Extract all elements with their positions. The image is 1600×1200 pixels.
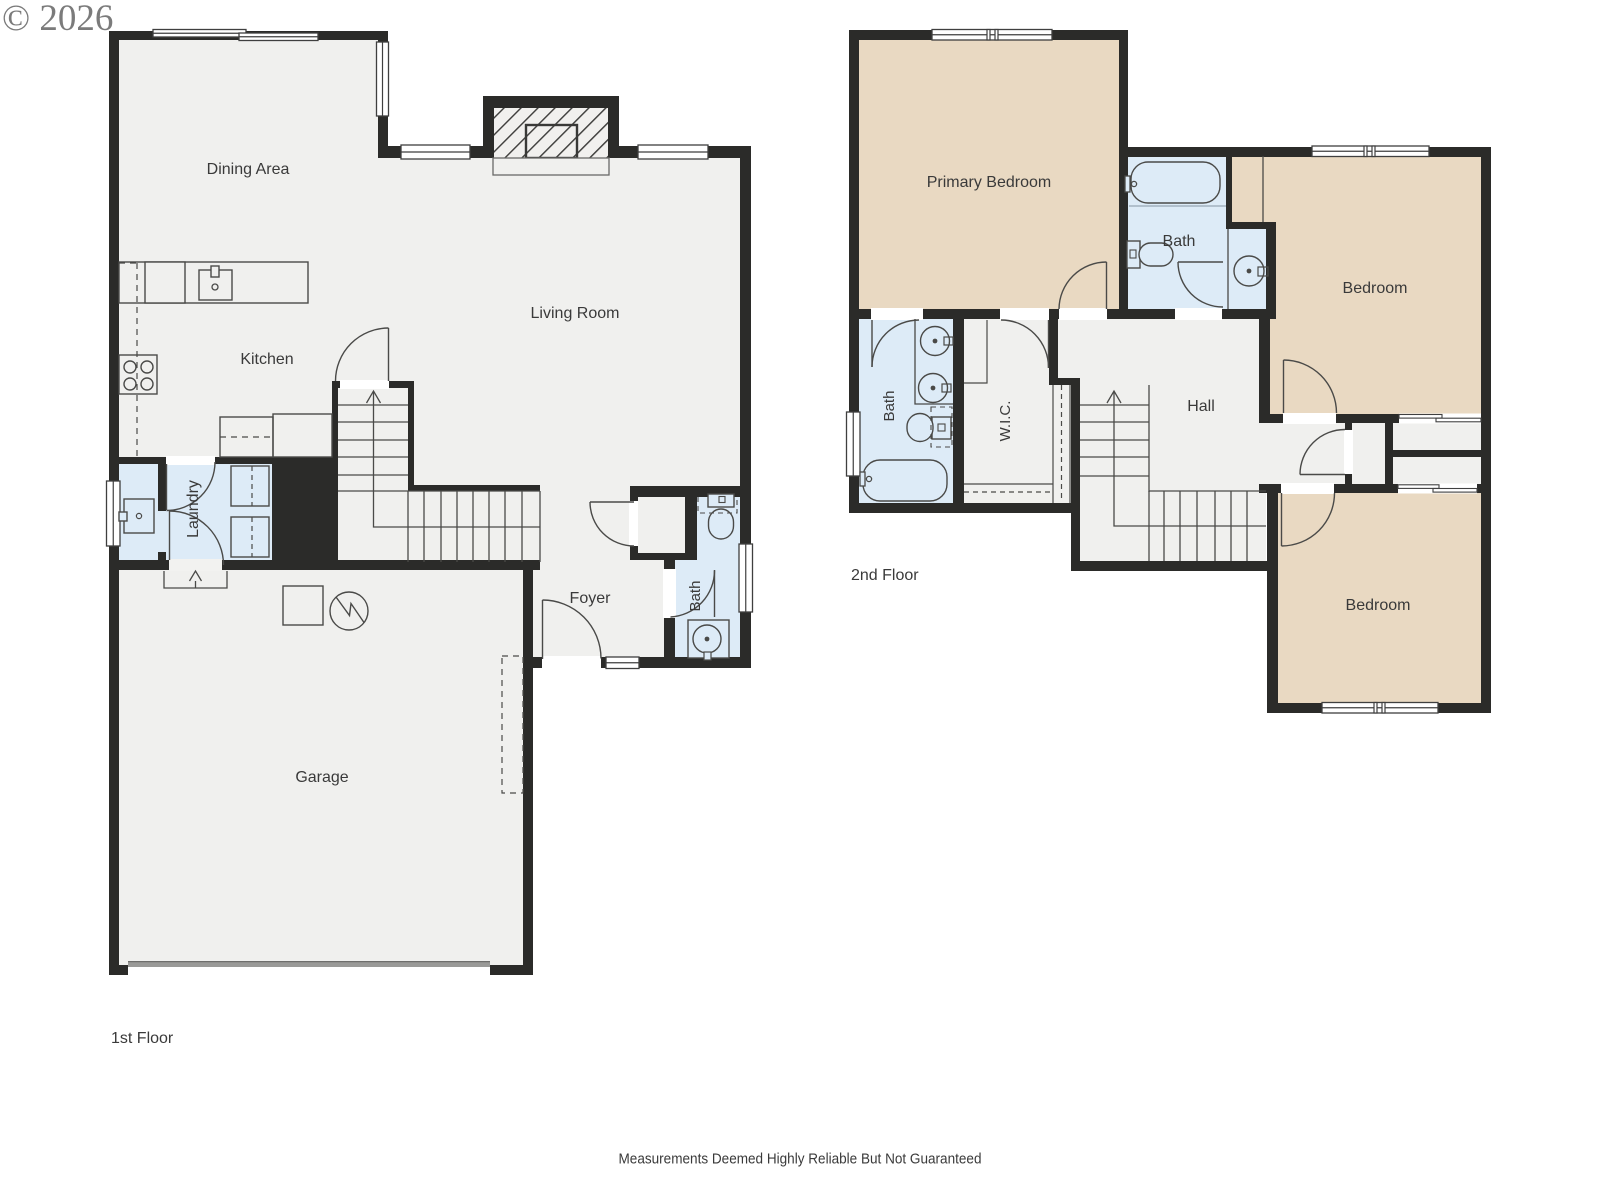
svg-text:Bedroom: Bedroom: [1346, 597, 1411, 614]
svg-text:Bath: Bath: [687, 581, 704, 612]
svg-text:Bath: Bath: [881, 391, 898, 422]
svg-text:Dining Area: Dining Area: [207, 161, 290, 178]
svg-text:Bath: Bath: [1163, 233, 1196, 250]
svg-text:Primary Bedroom: Primary Bedroom: [927, 174, 1051, 191]
svg-text:Kitchen: Kitchen: [240, 351, 293, 368]
svg-text:Garage: Garage: [295, 769, 348, 786]
svg-text:Hall: Hall: [1187, 398, 1215, 415]
svg-text:2nd Floor: 2nd Floor: [851, 567, 919, 584]
svg-text:1st Floor: 1st Floor: [111, 1030, 174, 1047]
svg-text:Measurements Deemed Highly Rel: Measurements Deemed Highly Reliable But …: [619, 1151, 982, 1168]
svg-text:W.I.C.: W.I.C.: [997, 401, 1014, 442]
svg-text:Laundry: Laundry: [185, 480, 202, 538]
svg-text:Foyer: Foyer: [570, 590, 612, 607]
svg-text:Living Room: Living Room: [531, 305, 620, 322]
svg-text:© 2026: © 2026: [2, 0, 113, 39]
svg-text:Bedroom: Bedroom: [1343, 280, 1408, 297]
